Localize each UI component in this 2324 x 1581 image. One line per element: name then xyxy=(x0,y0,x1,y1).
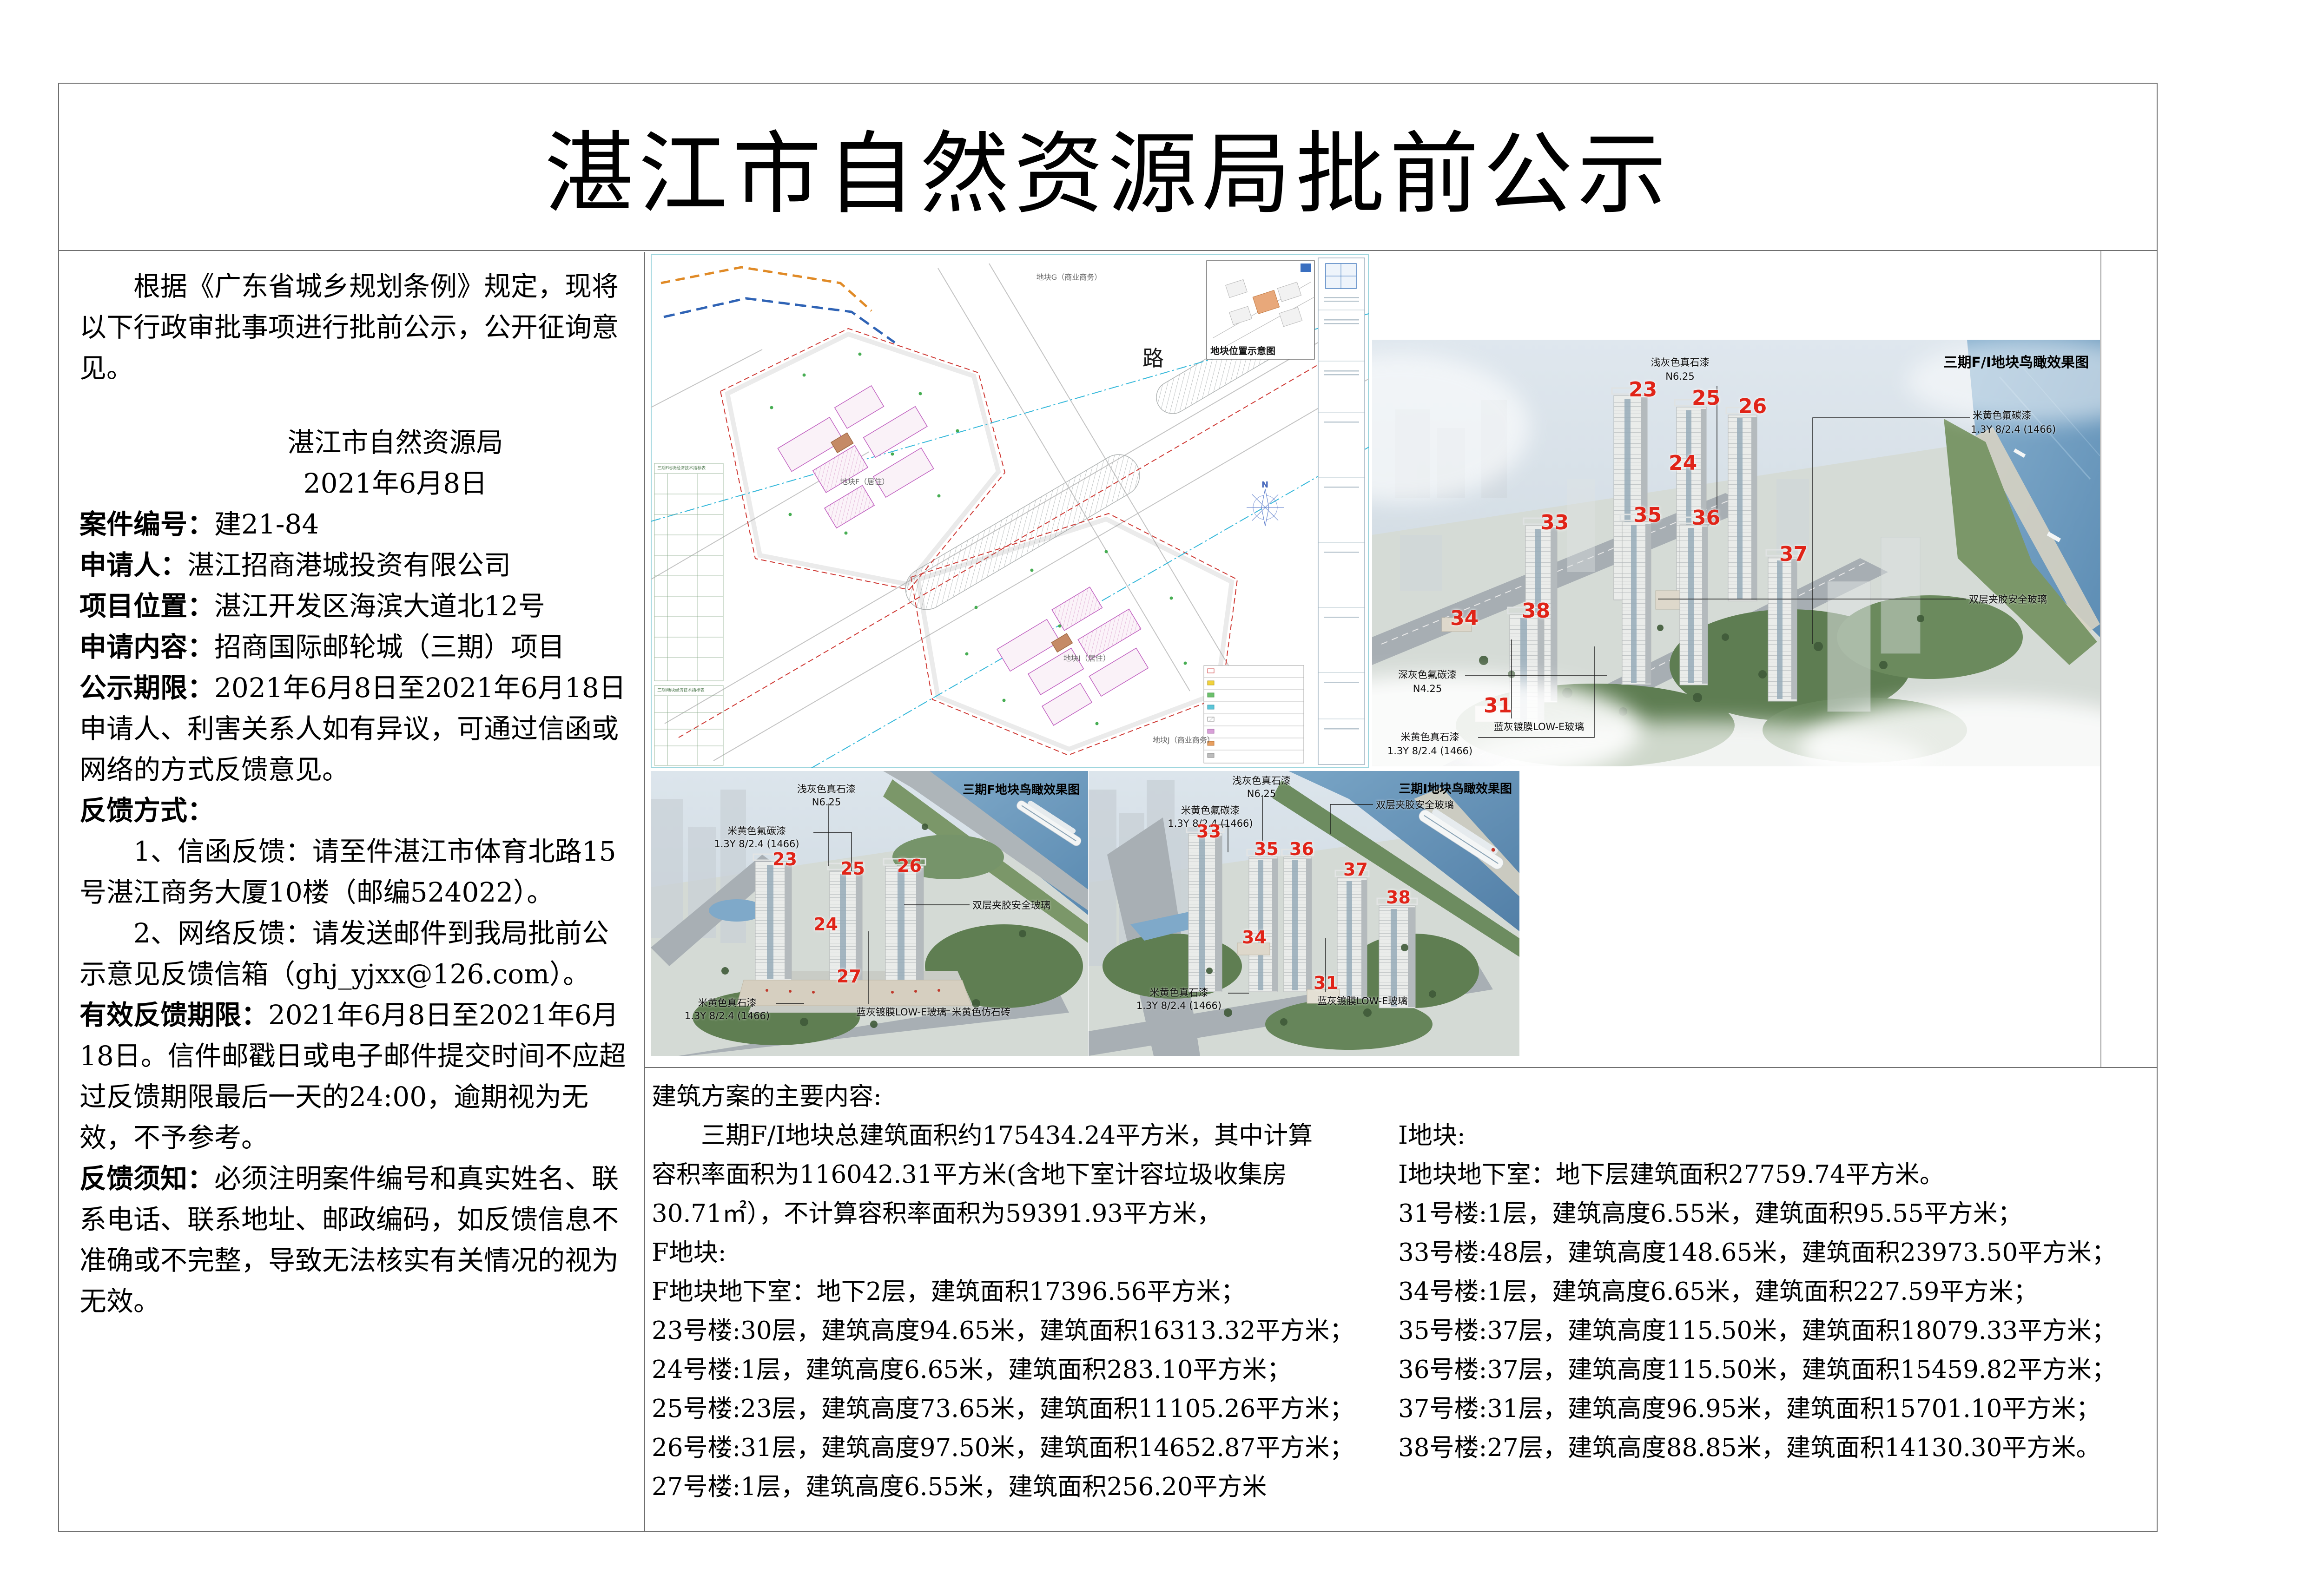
annotation-beige-brick: 米黄色仿石砖 xyxy=(952,1006,1010,1018)
notice-date: 2021年6月8日 xyxy=(158,463,632,504)
render-fi-title: 三期F/I地块鸟瞰效果图 xyxy=(1943,351,2089,371)
tower-number-26: 26 xyxy=(1738,395,1767,418)
render-i-scene xyxy=(1089,771,1519,1056)
annotation-beige-fluoro: 米黄色氟碳漆 xyxy=(701,825,812,837)
note-paragraph: 反馈须知：必须注明案件编号和真实姓名、联系电话、联系地址、邮政编码，如反馈信息不… xyxy=(79,1158,632,1322)
applicant-value: 湛江招商港城投资有限公司 xyxy=(187,549,511,581)
parcel-g-label: 地块G（商业商务） xyxy=(1023,271,1116,282)
public-notice-page: { "title": "湛江市自然资源局批前公示", "left_panel":… xyxy=(0,0,2324,1581)
scheme-line: 35号楼:37层，建筑高度115.50米，建筑面积18079.33平方米； xyxy=(1398,1311,2160,1350)
note-label: 反馈须知： xyxy=(79,1163,214,1194)
tower-number-36: 36 xyxy=(1289,839,1314,859)
scheme-line: 37号楼:31层，建筑高度96.95米，建筑面积15701.10平方米； xyxy=(1398,1390,2160,1429)
scheme-line: I地块地下室：地下层建筑面积27759.74平方米。 xyxy=(1398,1155,2160,1194)
site-plan-figure: 地块G（商业商务） 路 地块F（居住） 地块I（居住） 地块J（商业商务） 地块… xyxy=(651,254,1369,768)
legend-box xyxy=(1204,665,1304,763)
scheme-line: 容积率面积为116042.31平方米(含地下室计容垃圾收集房 xyxy=(652,1155,1377,1194)
tower-number-31: 31 xyxy=(1314,973,1338,993)
scheme-line: 34号楼:1层，建筑高度6.65米，建筑面积227.59平方米； xyxy=(1398,1272,2160,1311)
tower-number-24: 24 xyxy=(1669,451,1697,475)
annotation-light-gray-stone: 浅灰色真石漆 xyxy=(1625,356,1735,369)
annotation-beige-fluoro: 米黄色氟碳漆 xyxy=(1973,409,2031,422)
render-f-aerial: 三期F地块鸟瞰效果图 浅灰色真石漆 N6.25 米黄色氟碳漆 1.3Y 8/2.… xyxy=(651,771,1088,1056)
north-label: N xyxy=(1261,480,1268,490)
annotation-beige-stone-code: 1.3Y 8/2.4 (1466) xyxy=(1127,1000,1231,1012)
case-number-label: 案件编号： xyxy=(79,508,214,540)
location-row: 项目位置：湛江开发区海滨大道北12号 xyxy=(79,586,632,626)
tower-number-36: 36 xyxy=(1692,506,1720,530)
period-row: 公示期限：2021年6月8日至2021年6月18日 xyxy=(79,667,632,708)
tower-number-24: 24 xyxy=(813,914,838,935)
scheme-line: F地块地下室：地下2层，建筑面积17396.56平方米； xyxy=(652,1272,1377,1311)
annotation-beige-stone-code: 1.3Y 8/2.4 (1466) xyxy=(675,1010,779,1022)
annotation-beige-fluoro-code: 1.3Y 8/2.4 (1466) xyxy=(701,838,812,850)
parcel-i-label: 地块I（居住） xyxy=(1063,652,1110,663)
content-label: 申请内容： xyxy=(79,631,214,663)
content-row: 申请内容：招商国际邮轮城（三期）项目 xyxy=(79,626,632,667)
divider-bottom-section xyxy=(645,1067,2158,1068)
scheme-line: 23号楼:30层，建筑高度94.65米，建筑面积16313.32平方米； xyxy=(652,1311,1377,1350)
tower-number-38: 38 xyxy=(1386,887,1411,908)
applicant-label: 申请人： xyxy=(79,549,187,581)
annotation-lowe-glass: 蓝灰镀膜LOW-E玻璃 xyxy=(1317,995,1407,1007)
scheme-line: 38号楼:27层，建筑高度88.85米，建筑面积14130.30平方米。 xyxy=(1398,1429,2160,1468)
location-value: 湛江开发区海滨大道北12号 xyxy=(214,590,545,622)
tower-number-23: 23 xyxy=(1629,378,1657,402)
tower-number-31: 31 xyxy=(1484,694,1512,718)
annotation-light-gray-stone-code: N6.25 xyxy=(1210,788,1313,800)
annotation-laminated-glass: 双层夹胶安全玻璃 xyxy=(1376,799,1454,811)
scheme-line: 26号楼:31层，建筑高度97.50米，建筑面积14652.87平方米； xyxy=(652,1429,1377,1468)
scheme-line: F地块: xyxy=(652,1233,1377,1272)
table-f-title: 三期F地块经济技术指标表 xyxy=(657,465,706,471)
title-band: 湛江市自然资源局批前公示 xyxy=(58,83,2158,251)
agency-name: 湛江市自然资源局 xyxy=(158,422,632,463)
annotation-beige-stone: 米黄色真石漆 xyxy=(1378,731,1482,743)
tower-number-25: 25 xyxy=(1692,386,1720,410)
tower-number-35: 35 xyxy=(1633,503,1662,527)
annotation-light-gray-stone: 浅灰色真石漆 xyxy=(1210,775,1313,787)
table-i-title: 三期I地块经济技术指标表 xyxy=(657,687,705,693)
tower-number-33: 33 xyxy=(1196,821,1221,842)
render-fi-scene xyxy=(1372,340,2100,766)
building-scheme-left-column: 建筑方案的主要内容: 三期F/I地块总建筑面积约175434.24平方米，其中计… xyxy=(652,1077,1377,1507)
annotation-beige-fluoro: 米黄色氟碳漆 xyxy=(1155,804,1266,817)
tower-number-38: 38 xyxy=(1522,599,1550,623)
applicant-row: 申请人：湛江招商港城投资有限公司 xyxy=(79,545,632,586)
tower-number-33: 33 xyxy=(1540,511,1569,534)
annotation-beige-stone: 米黄色真石漆 xyxy=(675,997,779,1009)
tower-number-34: 34 xyxy=(1450,606,1479,630)
notice-text-panel: 根据《广东省城乡规划条例》规定，现将以下行政审批事项进行批前公示，公开征询意见。… xyxy=(59,252,645,1531)
tower-number-34: 34 xyxy=(1242,927,1267,948)
render-i-aerial: 三期I地块鸟瞰效果图 浅灰色真石漆 N6.25 米黄色氟碳漆 1.3Y 8/2.… xyxy=(1089,771,1519,1056)
content-value: 招商国际邮轮城（三期）项目 xyxy=(214,631,565,663)
feedback-label: 反馈方式： xyxy=(79,795,214,826)
annotation-light-gray-stone: 浅灰色真石漆 xyxy=(775,783,878,795)
tower-number-37: 37 xyxy=(1343,859,1368,880)
scheme-heading: 建筑方案的主要内容: xyxy=(652,1077,1377,1116)
title-block-strip xyxy=(1318,258,1365,764)
valid-period-label: 有效反馈期限： xyxy=(79,999,268,1031)
annotation-beige-stone: 米黄色真石漆 xyxy=(1127,987,1231,999)
period-value: 2021年6月8日至2021年6月18日 xyxy=(214,672,626,704)
objection-paragraph: 申请人、利害关系人如有异议，可通过信函或网络的方式反馈意见。 xyxy=(79,708,632,790)
divider-right-inner xyxy=(2100,251,2101,1067)
render-i-title: 三期I地块鸟瞰效果图 xyxy=(1399,779,1512,797)
building-scheme-right-column: I地块: I地块地下室：地下层建筑面积27759.74平方米。 31号楼:1层，… xyxy=(1398,1116,2160,1468)
period-label: 公示期限： xyxy=(79,672,214,704)
parcel-f-label: 地块F（居住） xyxy=(840,475,889,487)
annotation-dark-gray-fluoro: 深灰色氟碳漆 xyxy=(1383,669,1472,681)
valid-period-paragraph: 有效反馈期限：2021年6月8日至2021年6月18日。信件邮戳日或电子邮件提交… xyxy=(79,995,632,1158)
tower-number-25: 25 xyxy=(840,858,865,879)
scheme-line: 27号楼:1层，建筑高度6.55米，建筑面积256.20平方米 xyxy=(652,1468,1377,1507)
scheme-line: 24号楼:1层，建筑高度6.65米，建筑面积283.10平方米； xyxy=(652,1350,1377,1390)
feedback-email-item: 2、网络反馈：请发送邮件到我局批前公示意见反馈信箱（ghj_yjxx@126.c… xyxy=(79,913,632,995)
scheme-line: 三期F/I地块总建筑面积约175434.24平方米，其中计算 xyxy=(652,1116,1377,1155)
road-label: 路 xyxy=(1142,342,1164,372)
feedback-mail-item: 1、信函反馈：请至件湛江市体育北路15号湛江商务大厦10楼（邮编524022）。 xyxy=(79,831,632,913)
page-title: 湛江市自然资源局批前公示 xyxy=(545,102,1671,231)
tower-number-27: 27 xyxy=(837,966,861,987)
tower-number-26: 26 xyxy=(897,856,922,876)
scheme-line: 25号楼:23层，建筑高度73.65米，建筑面积11105.26平方米； xyxy=(652,1390,1377,1429)
feedback-heading: 反馈方式： xyxy=(79,790,632,831)
annotation-beige-fluoro-code: 1.3Y 8/2.4 (1466) xyxy=(1971,423,2056,435)
tower-number-35: 35 xyxy=(1254,839,1279,859)
annotation-laminated-glass: 双层夹胶安全玻璃 xyxy=(972,899,1050,911)
scheme-line: 36号楼:37层，建筑高度115.50米，建筑面积15459.82平方米； xyxy=(1398,1350,2160,1390)
signature-block: 湛江市自然资源局 2021年6月8日 xyxy=(79,422,632,504)
scheme-line: 30.71㎡），不计算容积率面积为59391.93平方米， xyxy=(652,1194,1377,1233)
annotation-light-gray-stone-code: N6.25 xyxy=(775,796,878,808)
annotation-lowe-glass: 蓝灰镀膜LOW-E玻璃 xyxy=(1494,721,1584,733)
annotation-lowe-glass: 蓝灰镀膜LOW-E玻璃 xyxy=(856,1006,946,1018)
scheme-line: 31号楼:1层，建筑高度6.55米，建筑面积95.55平方米； xyxy=(1398,1194,2160,1233)
north-compass-icon xyxy=(1247,489,1284,526)
location-label: 项目位置： xyxy=(79,590,214,622)
scheme-line: 33号楼:48层，建筑高度148.65米，建筑面积23973.50平方米； xyxy=(1398,1233,2160,1272)
render-f-title: 三期F地块鸟瞰效果图 xyxy=(963,780,1080,797)
tower-number-37: 37 xyxy=(1779,542,1808,566)
tower-number-23: 23 xyxy=(772,849,797,870)
site-plan-drawing xyxy=(651,254,1369,768)
annotation-laminated-glass: 双层夹胶安全玻璃 xyxy=(1969,593,2047,606)
inset-map-title: 地块位置示意图 xyxy=(1210,343,1275,357)
intro-paragraph: 根据《广东省城乡规划条例》规定，现将以下行政审批事项进行批前公示，公开征询意见。 xyxy=(79,266,632,389)
case-number-row: 案件编号：建21-84 xyxy=(79,504,632,545)
annotation-beige-stone-code: 1.3Y 8/2.4 (1466) xyxy=(1378,745,1482,757)
parcel-j-label: 地块J（商业商务） xyxy=(1153,734,1215,745)
case-number-value: 建21-84 xyxy=(214,508,319,540)
scheme-line: I地块: xyxy=(1398,1116,2160,1155)
annotation-dark-gray-fluoro-code: N4.25 xyxy=(1383,683,1472,695)
render-fi-aerial: 三期F/I地块鸟瞰效果图 浅灰色真石漆 N6.25 米黄色氟碳漆 1.3Y 8/… xyxy=(1372,340,2100,766)
